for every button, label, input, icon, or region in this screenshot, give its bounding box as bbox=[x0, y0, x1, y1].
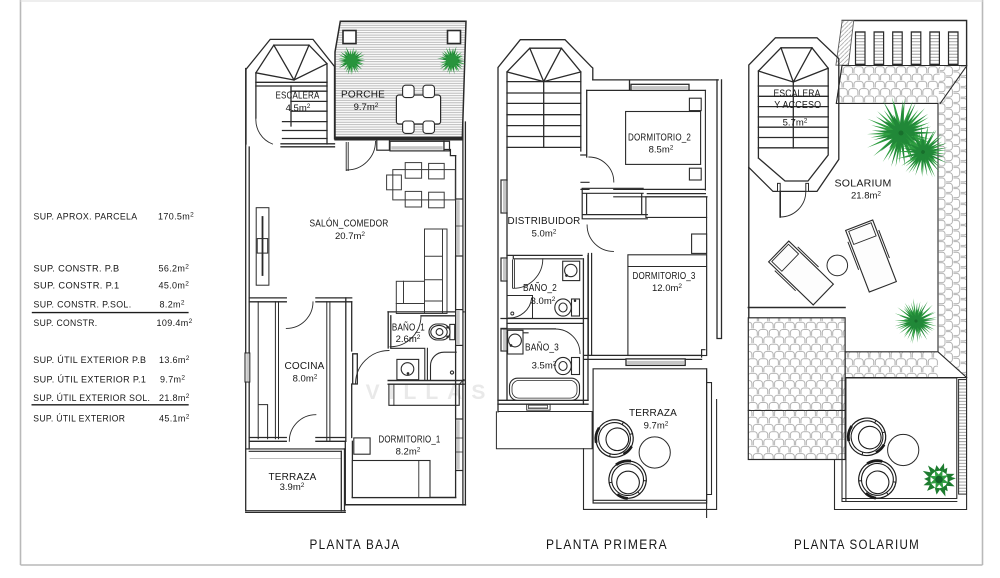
svg-text:SUP. CONSTR. P.1: SUP. CONSTR. P.1 bbox=[34, 280, 120, 290]
svg-text:DORMITORIO_3: DORMITORIO_3 bbox=[633, 271, 696, 282]
svg-text:170.5m2: 170.5m2 bbox=[158, 211, 194, 221]
svg-text:109.4m2: 109.4m2 bbox=[157, 318, 193, 328]
svg-text:SUP. CONSTR.: SUP. CONSTR. bbox=[34, 318, 98, 328]
svg-text:21.8m2: 21.8m2 bbox=[851, 191, 881, 202]
svg-text:SOLARIUM: SOLARIUM bbox=[835, 178, 892, 189]
svg-text:ESCALERA: ESCALERA bbox=[276, 90, 320, 101]
svg-text:20.7m2: 20.7m2 bbox=[335, 231, 365, 242]
svg-text:12.0m2: 12.0m2 bbox=[652, 283, 682, 294]
svg-text:SUP. ÚTIL EXTERIOR P.B: SUP. ÚTIL EXTERIOR P.B bbox=[33, 355, 146, 365]
svg-text:21.8m2: 21.8m2 bbox=[159, 393, 190, 403]
svg-text:BAÑO_1: BAÑO_1 bbox=[392, 320, 425, 333]
svg-text:PLANTA PRIMERA: PLANTA PRIMERA bbox=[546, 537, 668, 552]
svg-text:DISTRIBUIDOR: DISTRIBUIDOR bbox=[508, 216, 581, 227]
svg-text:SALÓN_COMEDOR: SALÓN_COMEDOR bbox=[310, 217, 389, 230]
svg-text:SUP. ÚTIL EXTERIOR SOL.: SUP. ÚTIL EXTERIOR SOL. bbox=[33, 393, 150, 403]
svg-text:SUP. CONSTR. P.B: SUP. CONSTR. P.B bbox=[34, 263, 120, 273]
svg-text:13.6m2: 13.6m2 bbox=[159, 355, 190, 365]
svg-text:ESCALERA: ESCALERA bbox=[774, 89, 821, 100]
svg-text:SUP. ÚTIL EXTERIOR: SUP. ÚTIL EXTERIOR bbox=[33, 413, 125, 423]
svg-text:DORMITORIO_1: DORMITORIO_1 bbox=[379, 435, 441, 446]
svg-text:BAÑO_2: BAÑO_2 bbox=[523, 281, 557, 294]
svg-text:PLANTA SOLARIUM: PLANTA SOLARIUM bbox=[794, 537, 920, 552]
svg-text:45.1m2: 45.1m2 bbox=[159, 413, 190, 423]
svg-text:45.0m2: 45.0m2 bbox=[159, 280, 190, 290]
svg-text:COCINA: COCINA bbox=[284, 361, 324, 372]
svg-text:Y ACCESO: Y ACCESO bbox=[774, 100, 821, 111]
svg-text:DORMITORIO_2: DORMITORIO_2 bbox=[628, 133, 691, 144]
svg-text:PORCHE: PORCHE bbox=[341, 90, 385, 101]
svg-text:56.2m2: 56.2m2 bbox=[159, 263, 190, 273]
svg-text:TERRAZA: TERRAZA bbox=[629, 408, 677, 419]
svg-text:PLANTA BAJA: PLANTA BAJA bbox=[310, 537, 401, 552]
svg-text:SUP. CONSTR. P.SOL.: SUP. CONSTR. P.SOL. bbox=[34, 300, 132, 310]
svg-text:SUP. ÚTIL EXTERIOR P.1: SUP. ÚTIL EXTERIOR P.1 bbox=[33, 375, 146, 385]
svg-text:SUP. APROX. PARCELA: SUP. APROX. PARCELA bbox=[34, 211, 138, 221]
svg-text:BAÑO_3: BAÑO_3 bbox=[525, 340, 559, 353]
